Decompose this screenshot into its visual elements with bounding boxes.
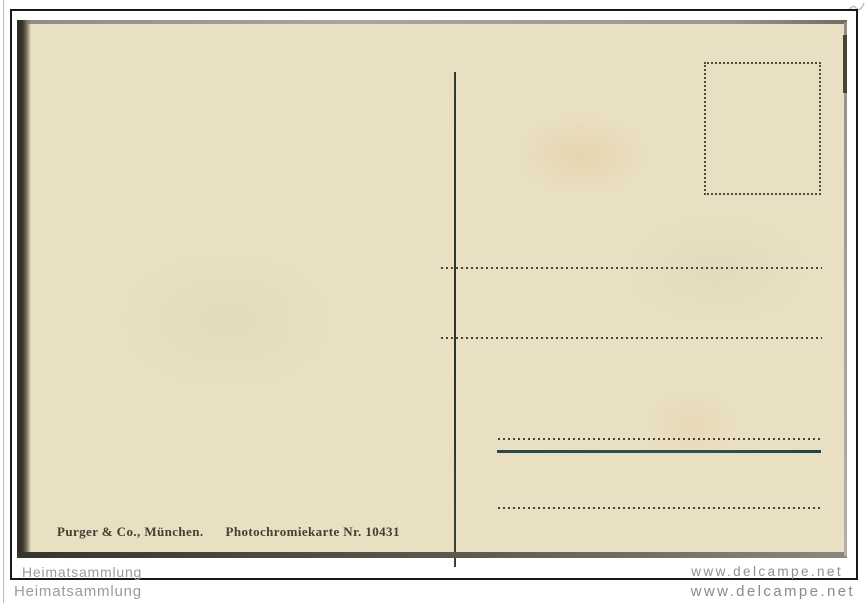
card-top-shadow [17,20,847,24]
stamp-box [704,62,821,195]
address-rule [497,450,821,453]
scan-edge-line [3,0,4,603]
watermark-collection-name: Heimatsammlung [22,564,142,580]
card-right-shadow [844,22,847,556]
watermark-site-url-outer: www.delcampe.net [691,583,855,600]
publisher-name: Purger & Co., München. [57,524,204,539]
card-left-shadow [17,20,31,558]
address-line-1 [441,267,822,269]
scanned-postcard-listing: Purger & Co., München.Photochromiekarte … [0,0,866,603]
publisher-imprint: Purger & Co., München.Photochromiekarte … [57,524,400,540]
address-line-2 [441,337,822,339]
postcard-center-divider [454,72,456,567]
address-line-3 [498,438,820,440]
postcard-back: Purger & Co., München.Photochromiekarte … [17,20,847,558]
card-right-shadow-dark [843,35,847,93]
card-bottom-shadow [17,552,847,558]
watermark-collection-name-outer: Heimatsammlung [14,583,142,600]
watermark-site-url: www.delcampe.net [691,564,843,579]
card-series-number: Photochromiekarte Nr. 10431 [226,524,400,539]
address-line-4 [498,507,820,509]
